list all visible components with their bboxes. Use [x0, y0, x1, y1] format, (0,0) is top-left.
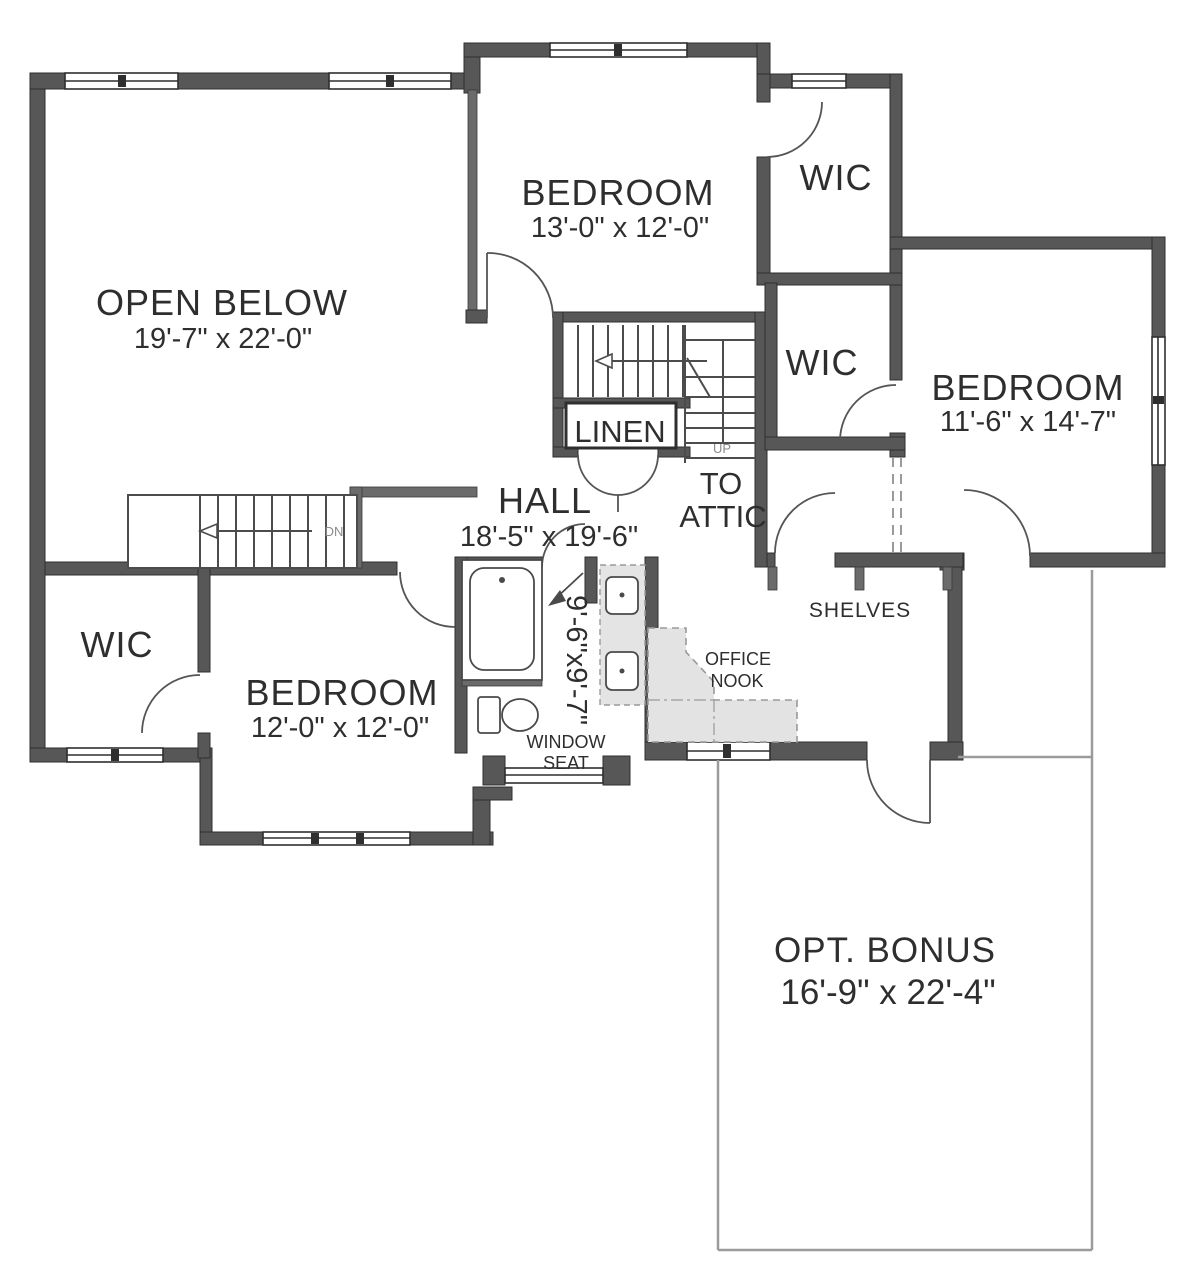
tub-drain	[499, 577, 505, 583]
bedroom-bottom-label: BEDROOM	[245, 672, 438, 713]
wic-mid-label: WIC	[786, 342, 859, 383]
bedroom-right-label: BEDROOM	[931, 367, 1124, 408]
wall-openbelow-right-cap	[466, 310, 487, 323]
wall-bedroomtop-a	[464, 43, 550, 57]
wall-atticstair-left	[553, 312, 563, 457]
stairs-down	[128, 495, 357, 568]
wall-wic-divider	[757, 273, 902, 285]
office-nook-label-2: NOOK	[710, 671, 763, 691]
door-arc-hall-closet	[775, 493, 835, 553]
window-seat-label-2: SEAT	[543, 753, 589, 773]
bedroom-right-dims: 11'-6" x 14'-7"	[940, 406, 1116, 438]
stair-up-arrowhead	[596, 354, 612, 368]
bath-fixtures	[462, 560, 645, 733]
wall-wic1-left-stub	[757, 74, 770, 102]
window-openbelow-1	[65, 73, 178, 89]
window-bedroombottom	[263, 832, 410, 845]
bedroom-top-dims: 13'-0" x 12'-0"	[531, 212, 709, 244]
wall-wic2-bottom	[765, 437, 905, 450]
sink-2-drain	[620, 669, 625, 674]
wall-bedroomright-bottom	[1030, 553, 1165, 567]
to-attic-label-1: TO	[700, 466, 743, 501]
window-openbelow-2	[329, 73, 451, 89]
wall-right-exterior-a	[1152, 237, 1165, 337]
wall-bump-left	[200, 748, 212, 845]
wall-windowseat-stub-left	[483, 756, 505, 785]
door-arc-bedroom-right	[964, 490, 1030, 556]
shelves-label: SHELVES	[809, 599, 911, 622]
shelf-stub-2	[855, 567, 864, 590]
door-arc-linen-right	[618, 455, 658, 495]
bath-dims-rotated: 9'-6"x9'-7"	[560, 595, 592, 725]
wall-office-bottom-a	[645, 742, 687, 760]
office-nook-label-1: OFFICE	[705, 649, 771, 669]
open-below-dims: 19'-7" x 22'-0"	[134, 323, 312, 355]
hall-dims: 18'-5" x 19'-6"	[460, 521, 638, 553]
toilet-tank	[478, 697, 500, 733]
door-arc-wic3	[142, 675, 200, 733]
open-below-label: OPEN BELOW	[96, 282, 348, 323]
wall-wic3-right-upper	[198, 560, 210, 672]
wall-right-exterior-b	[1152, 465, 1165, 567]
door-arc-bedroom-top	[487, 253, 553, 318]
bathtub	[470, 568, 534, 670]
up-label: UP	[713, 441, 731, 456]
shelf-stub-3	[943, 567, 952, 590]
sink-1-drain	[620, 593, 625, 598]
window-seat-label-1: WINDOW	[527, 732, 606, 752]
bedroom-bottom-dims: 12'-0" x 12'-0"	[251, 712, 429, 744]
window-officenook	[687, 742, 770, 760]
wall-bedroomright-top	[890, 237, 1165, 249]
floor-plan-drawing: OPEN BELOW 19'-7" x 22'-0" BEDROOM 13'-0…	[0, 0, 1200, 1288]
toilet-bowl	[502, 699, 538, 731]
wic-top-label: WIC	[800, 157, 873, 198]
bedroom-top-label: BEDROOM	[521, 172, 714, 213]
shelf-stub-1	[768, 567, 777, 590]
floor-plan-page: OPEN BELOW 19'-7" x 22'-0" BEDROOM 13'-0…	[0, 0, 1200, 1288]
linen-label: LINEN	[574, 414, 665, 449]
opt-bonus-label: OPT. BONUS	[774, 931, 996, 970]
wall-shelves-right	[948, 567, 962, 760]
wall-openbelow-right	[468, 90, 477, 310]
window-wic1	[792, 74, 846, 88]
door-arc-wic2	[840, 385, 896, 441]
door-arc-wic1	[767, 102, 822, 157]
wall-left-exterior	[30, 73, 45, 762]
wall-wic-right-upper	[890, 74, 902, 380]
window-bedroomtop	[550, 43, 687, 57]
wall-windowseat-stub-right	[603, 756, 630, 785]
wall-wic1-left	[757, 157, 770, 273]
wall-openbelow-bottom	[350, 487, 477, 497]
window-wic3	[67, 748, 163, 762]
bonus-outline	[718, 570, 1092, 1250]
window-bedroomright	[1152, 337, 1165, 465]
dashed-opening	[893, 457, 901, 553]
wall-top-left-b	[178, 73, 329, 89]
door-arc-bonus	[867, 760, 930, 823]
opt-bonus-dims: 16'-9" x 22'-4"	[780, 973, 995, 1012]
wall-bump-bottom-a	[200, 832, 263, 845]
wall-shelves-top-b	[835, 553, 963, 567]
wall-wic2-left	[765, 283, 777, 450]
wall-atticstair-top	[553, 312, 765, 322]
door-arc-bedroom-bottom	[400, 572, 455, 627]
to-attic-label-2: ATTIC	[679, 499, 766, 534]
wall-bump-jog	[473, 787, 512, 800]
wall-top-left-a	[30, 73, 65, 89]
wall-wic3-right-stub	[198, 733, 210, 758]
wall-shelves-bottom	[770, 742, 867, 760]
wall-wic3-bottom-a	[30, 748, 67, 762]
hall-label: HALL	[498, 480, 592, 521]
dn-label: DN	[325, 524, 344, 539]
wic-left-label: WIC	[81, 624, 154, 665]
